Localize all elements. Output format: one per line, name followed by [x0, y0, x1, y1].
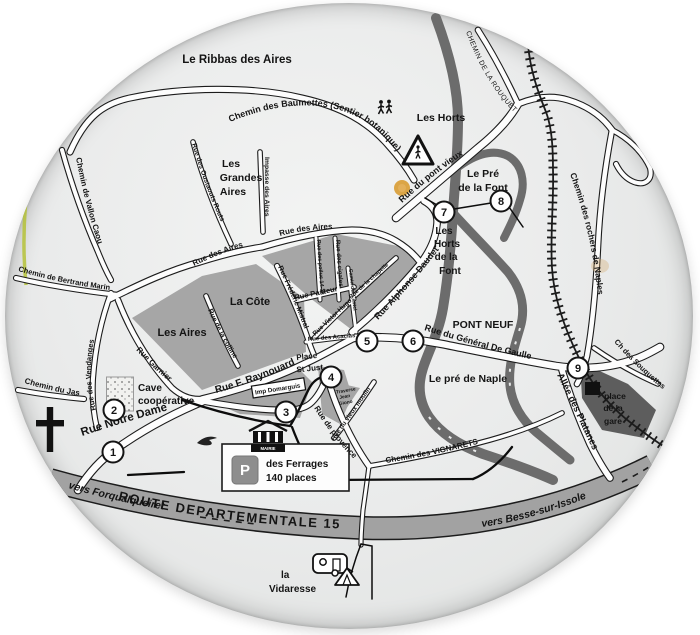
label-les-grandes-aires-2: Grandes: [220, 172, 263, 184]
label-place-de-la-gare-2: de la: [603, 403, 623, 413]
road-chemin-de-vallon-caou: [62, 150, 111, 280]
marker-number-4: 4: [328, 372, 335, 384]
label-les-grandes-aires-3: Aires: [220, 186, 246, 198]
campsite-lane-straight: [361, 544, 372, 599]
label-les-horts-de-la-font-1: Les: [435, 226, 453, 237]
label-la-cote: La Côte: [230, 296, 270, 308]
village-map: Chemin des Baumettes (Sentier botanique)…: [5, 3, 693, 629]
label-les-grandes-aires-1: Les: [222, 158, 240, 170]
label-cave-cooperative-1: Cave: [138, 383, 162, 394]
crossing-warning-icon: [403, 136, 433, 164]
route-under-parking: [332, 479, 473, 480]
postal-bird-icon: [197, 437, 217, 446]
route-west-stub: [128, 472, 184, 475]
label-les-horts-de-la-font-3: de la: [435, 252, 458, 263]
hikers-icon: [378, 100, 392, 114]
connector-7-8: [454, 203, 491, 209]
marker-number-2: 2: [111, 405, 117, 417]
label-cave-cooperative-2: coopérative: [138, 396, 195, 407]
ceramic-plate: Chemin des Baumettes (Sentier botanique)…: [5, 3, 693, 629]
label-les-horts-de-la-font-2: Horts: [434, 239, 461, 250]
marker-number-3: 3: [283, 407, 289, 419]
marker-number-1: 1: [110, 447, 116, 459]
label-les-aires: Les Aires: [157, 327, 206, 339]
calvary-cross-icon: [36, 407, 64, 452]
label-mairie: MAIRIE: [260, 446, 275, 451]
label-le-pre-de-la-font-1: Le Pré: [467, 168, 499, 180]
station-building-icon: [585, 382, 600, 395]
label-parking-p: P: [240, 462, 250, 479]
label-le-pre-de-naple: Le pré de Naple: [429, 373, 507, 385]
marker-number-6: 6: [410, 336, 416, 348]
label-place-de-la-gare-1: place: [604, 391, 626, 401]
marker-number-9: 9: [575, 363, 581, 375]
label-le-ribbas-des-aires: Le Ribbas des Aires: [182, 54, 292, 66]
marker-number-8: 8: [498, 196, 504, 208]
label-parking-des-ferrages-1: des Ferrages: [266, 459, 329, 470]
label-les-horts: Les Horts: [417, 112, 466, 124]
label-impasse-des-aires: Impasse des Aires: [263, 157, 270, 217]
label-la-vidaresse-2: Vidaresse: [269, 584, 317, 595]
label-parking-des-ferrages-2: 140 places: [266, 473, 317, 484]
plate-map-photo: Chemin des Baumettes (Sentier botanique)…: [0, 0, 700, 635]
marker-number-7: 7: [441, 207, 447, 219]
road-northeast-loop: [612, 130, 651, 183]
label-la-vidaresse-1: la: [281, 570, 290, 581]
marker-number-5: 5: [364, 336, 370, 348]
label-place-de-la-gare-3: gare: [604, 416, 622, 426]
label-chemin-des-baumettes: Chemin des Baumettes (Sentier botanique): [227, 97, 403, 153]
label-les-horts-de-la-font-4: Font: [439, 266, 461, 277]
label-pont-neuf: PONT NEUF: [453, 319, 514, 331]
